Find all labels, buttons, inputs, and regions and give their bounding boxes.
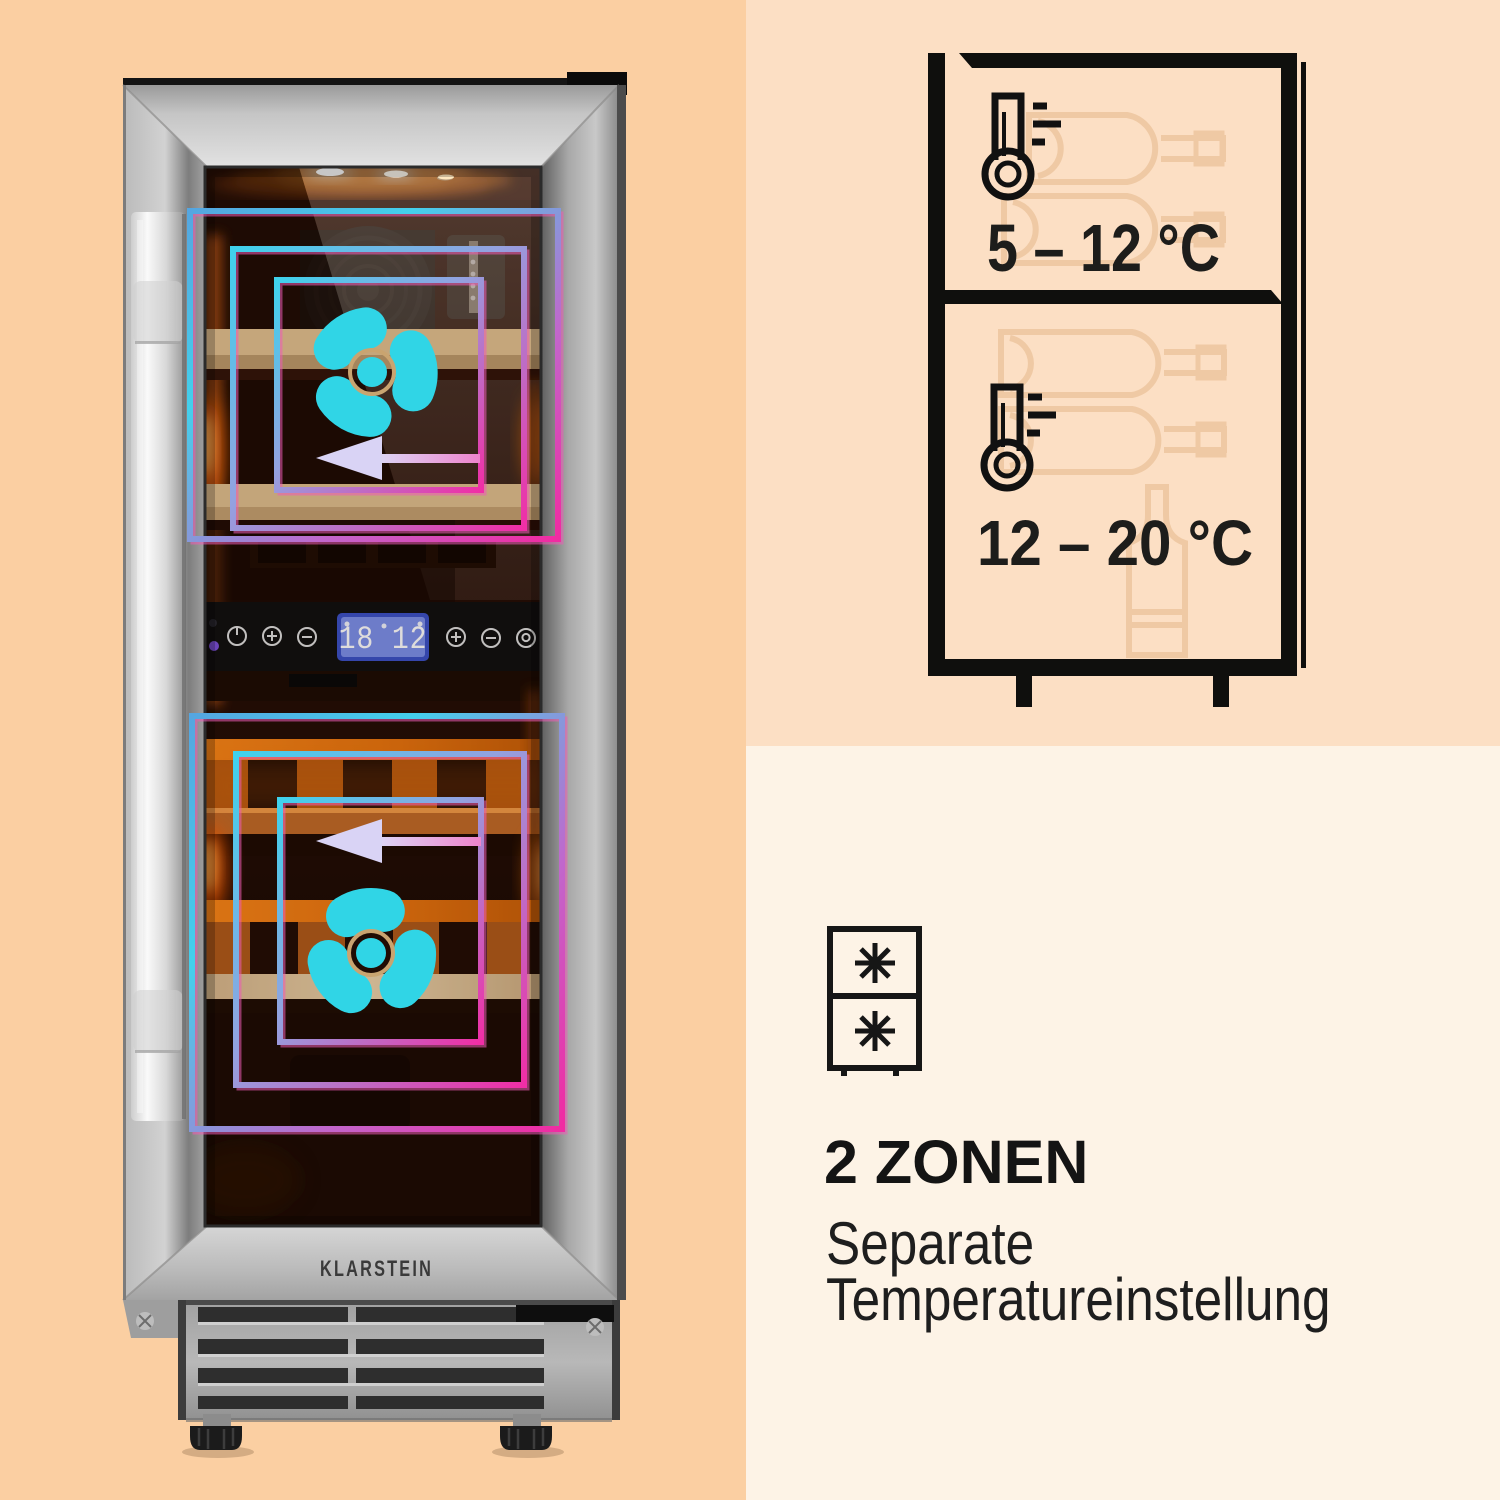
svg-text:5 – 12 °C: 5 – 12 °C (987, 211, 1220, 286)
svg-text:KLARSTEIN: KLARSTEIN (320, 1257, 433, 1282)
svg-text:2 ZONEN: 2 ZONEN (824, 1128, 1088, 1196)
svg-text:12 – 20 °C: 12 – 20 °C (977, 508, 1253, 579)
svg-text:Temperatureinstellung: Temperatureinstellung (826, 1265, 1331, 1333)
